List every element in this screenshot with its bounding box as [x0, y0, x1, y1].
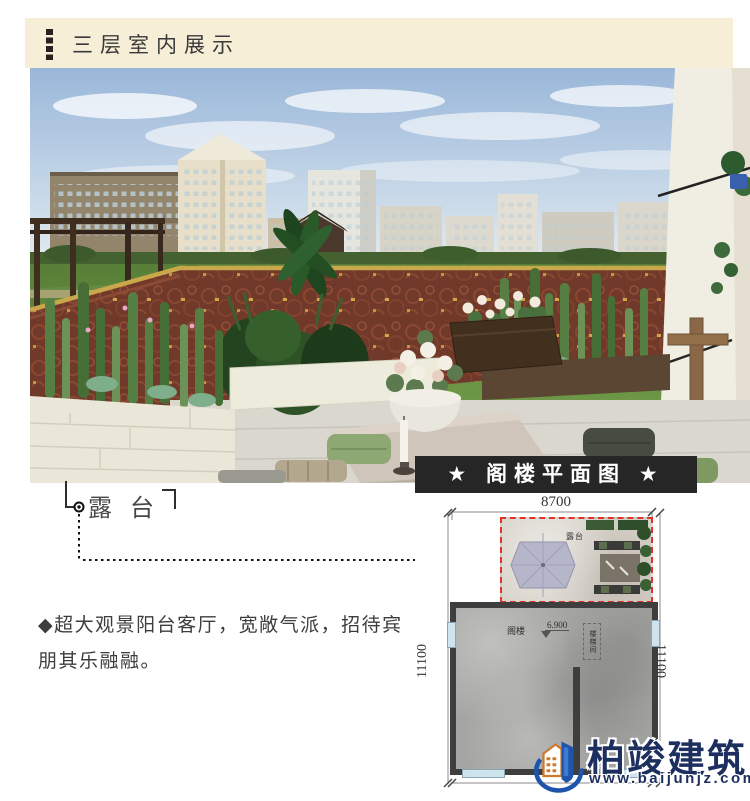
brand-watermark: 柏竣建筑 www.baijunjz.com [530, 720, 750, 801]
description-line1: ◆超大观景阳台客厅，宽敞气派，招待宾 [38, 615, 403, 636]
brand-logo-icon [533, 724, 587, 798]
brand-website: www.baijunjz.com [589, 770, 750, 787]
terrace-photo [30, 68, 750, 483]
section-title-band: 三层室内展示 [25, 18, 733, 68]
section-title: 三层室内展示 [72, 29, 240, 59]
plan-terrace-label: 露台 [566, 531, 584, 542]
plan-elevation-marker [541, 631, 551, 638]
description-text: ◆超大观景阳台客厅，宽敞气派，招待宾 朋其乐融融。 [38, 608, 458, 680]
plan-room-label: 阁楼 [507, 624, 525, 637]
plan-window-bottom-1 [462, 769, 505, 778]
plan-stairwell-label: 楼梯间 [587, 630, 597, 654]
plan-stairwell: 楼梯间 [583, 623, 601, 660]
callout-bracket-left [65, 481, 79, 508]
plan-window-right [651, 620, 660, 647]
terrace-callout-label: 露台 [88, 488, 172, 523]
plan-terrace-area: 露台 [500, 517, 653, 603]
page: 三层室内展示 [0, 0, 750, 801]
terrace-photo-art [30, 68, 750, 483]
plan-window-left [447, 622, 456, 648]
dimension-top: 8700 [415, 494, 697, 511]
plan-elevation-value: 6.900 [545, 620, 569, 631]
floorplan-title: ★ 阁楼平面图 ★ [415, 456, 697, 493]
title-accent-dashes [46, 29, 53, 60]
description-line2: 朋其乐融融。 [38, 651, 161, 672]
dimension-left: 11100 [415, 644, 431, 678]
